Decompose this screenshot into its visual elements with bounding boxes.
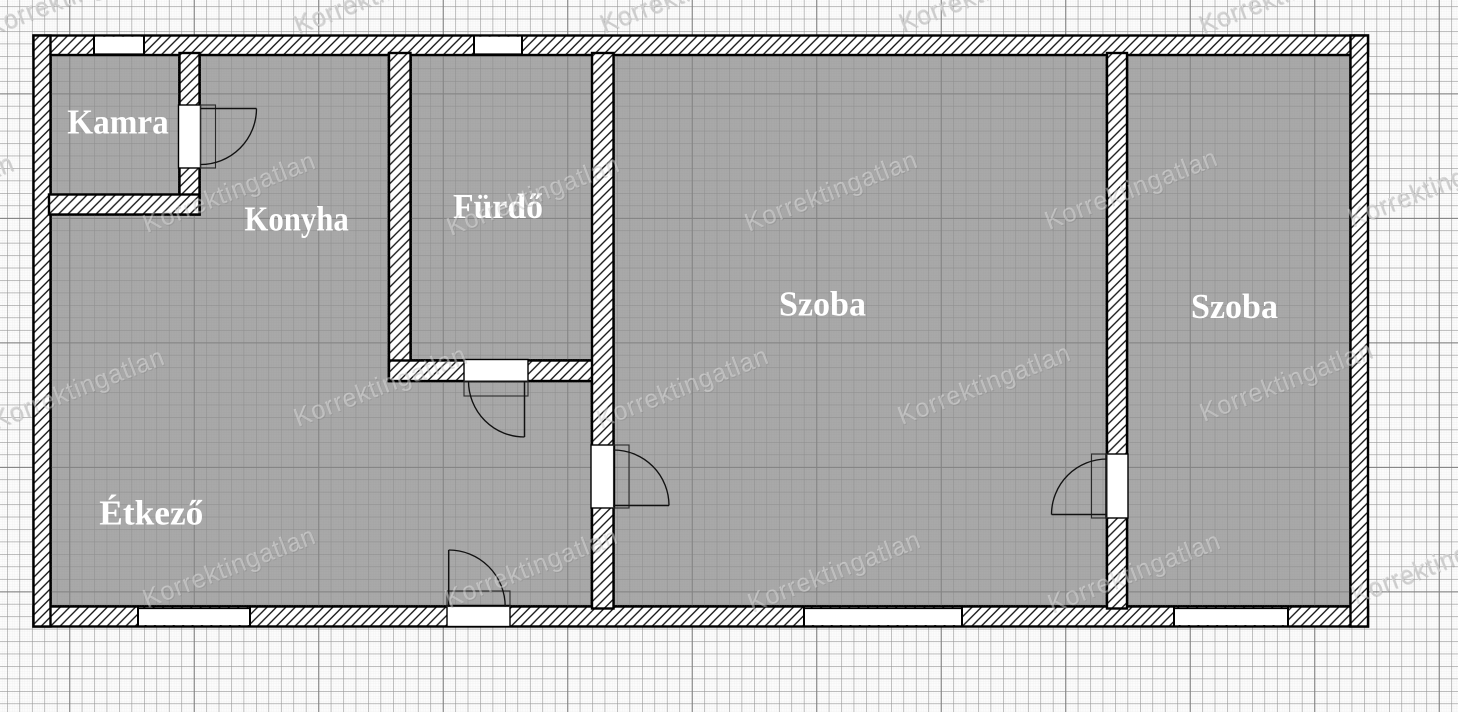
svg-text:Étkező: Étkező xyxy=(99,494,203,533)
svg-text:Szoba: Szoba xyxy=(1191,287,1278,326)
svg-text:Konyha: Konyha xyxy=(244,200,349,239)
svg-text:Kamra: Kamra xyxy=(67,103,169,142)
svg-text:Szoba: Szoba xyxy=(779,285,866,324)
